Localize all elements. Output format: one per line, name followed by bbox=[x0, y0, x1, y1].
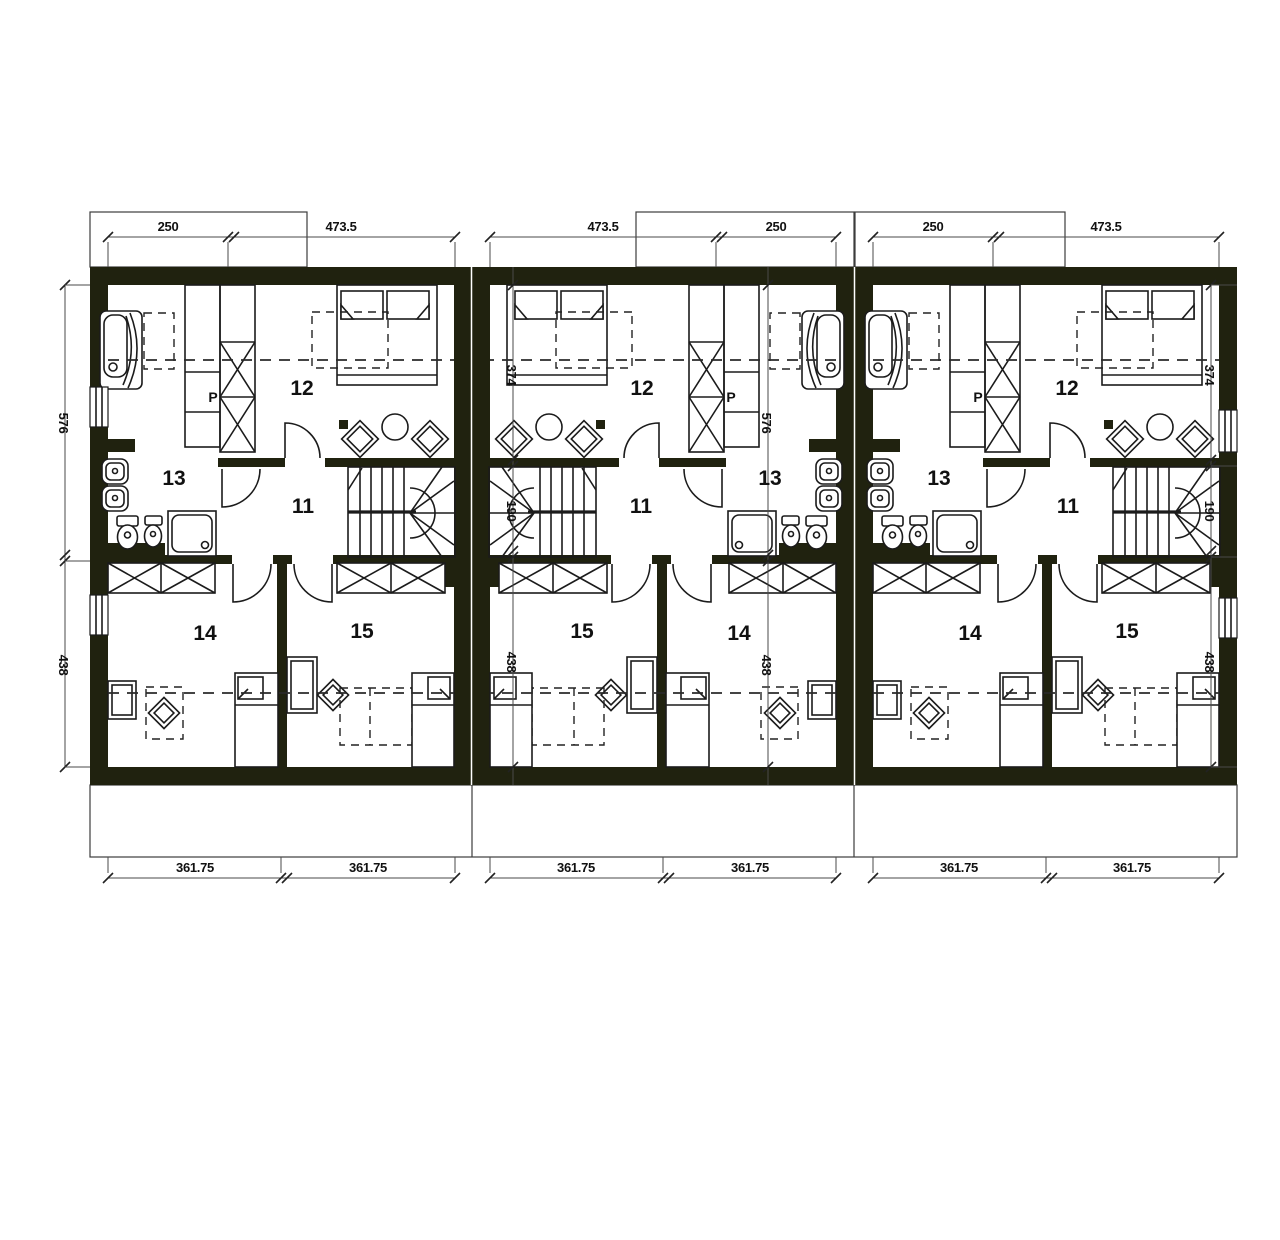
dim-top-6: 473.5 bbox=[1090, 219, 1121, 234]
dim-line-left bbox=[60, 280, 90, 772]
dim-right-2: 190 bbox=[1202, 501, 1217, 522]
room-label-bathroom-unit-3: 13 bbox=[927, 467, 950, 490]
lower-outline bbox=[90, 785, 1237, 857]
closet-label-unit-2: P bbox=[726, 389, 735, 405]
floor-plan-canvas: 12 13 11 14 15 P 12 13 11 14 15 P 12 13 … bbox=[0, 0, 1280, 1240]
room-label-bathroom-unit-2: 13 bbox=[758, 467, 781, 490]
dim-top-5: 250 bbox=[923, 219, 944, 234]
dim-bottom-4: 361.75 bbox=[731, 860, 769, 875]
unit-2-mirrored bbox=[472, 267, 854, 785]
dim-right-1: 374 bbox=[1202, 365, 1217, 387]
dim-bottom-5: 361.75 bbox=[940, 860, 978, 875]
dim-inner-bath-1: 576 bbox=[759, 413, 774, 434]
dim-bottom-1: 361.75 bbox=[176, 860, 214, 875]
roof-box-unit-3 bbox=[855, 212, 1065, 267]
closet-label-unit-3: P bbox=[973, 389, 982, 405]
room-label-bathroom-unit-1: 13 bbox=[162, 467, 185, 490]
dim-bottom-6: 361.75 bbox=[1113, 860, 1151, 875]
room-label-bedroom-unit-2: 12 bbox=[630, 377, 653, 400]
floor-plan-page: 12 13 11 14 15 P 12 13 11 14 15 P 12 13 … bbox=[0, 0, 1280, 1240]
dim-top-3: 473.5 bbox=[587, 219, 618, 234]
room-label-room14-unit-3: 14 bbox=[958, 622, 982, 645]
room-label-room15-unit-2: 15 bbox=[570, 620, 594, 643]
dim-right-3: 438 bbox=[1202, 652, 1217, 673]
unit-1 bbox=[90, 267, 472, 785]
room-label-hall-unit-1: 11 bbox=[292, 495, 315, 518]
room-label-bedroom-unit-3: 12 bbox=[1055, 377, 1078, 400]
roof-box-unit-1 bbox=[90, 212, 307, 267]
dim-top-2: 473.5 bbox=[325, 219, 356, 234]
room-label-hall-unit-3: 11 bbox=[1057, 495, 1080, 518]
unit-3 bbox=[855, 267, 1237, 785]
room-label-room14-unit-1: 14 bbox=[193, 622, 217, 645]
dim-bottom-2: 361.75 bbox=[349, 860, 387, 875]
room-label-room15-unit-3: 15 bbox=[1115, 620, 1139, 643]
dim-inner-bath-2: 438 bbox=[759, 655, 774, 676]
room-label-room15-unit-1: 15 bbox=[350, 620, 374, 643]
room-label-bedroom-unit-1: 12 bbox=[290, 377, 313, 400]
room-label-room14-unit-2: 14 bbox=[727, 622, 751, 645]
room-label-hall-unit-2: 11 bbox=[630, 495, 653, 518]
dim-top-4: 250 bbox=[766, 219, 787, 234]
dim-inner-stairs-3: 438 bbox=[504, 652, 519, 673]
dim-left-2: 438 bbox=[56, 655, 71, 676]
dim-left-1: 576 bbox=[56, 413, 71, 434]
dim-bottom-3: 361.75 bbox=[557, 860, 595, 875]
dim-inner-stairs-1: 374 bbox=[504, 365, 519, 387]
dim-top-1: 250 bbox=[158, 219, 179, 234]
closet-label-unit-1: P bbox=[208, 389, 217, 405]
roof-box-unit-2 bbox=[636, 212, 854, 267]
dim-line-top bbox=[103, 232, 1224, 267]
dim-line-bottom bbox=[103, 857, 1224, 883]
dim-inner-stairs-2: 190 bbox=[504, 501, 519, 522]
